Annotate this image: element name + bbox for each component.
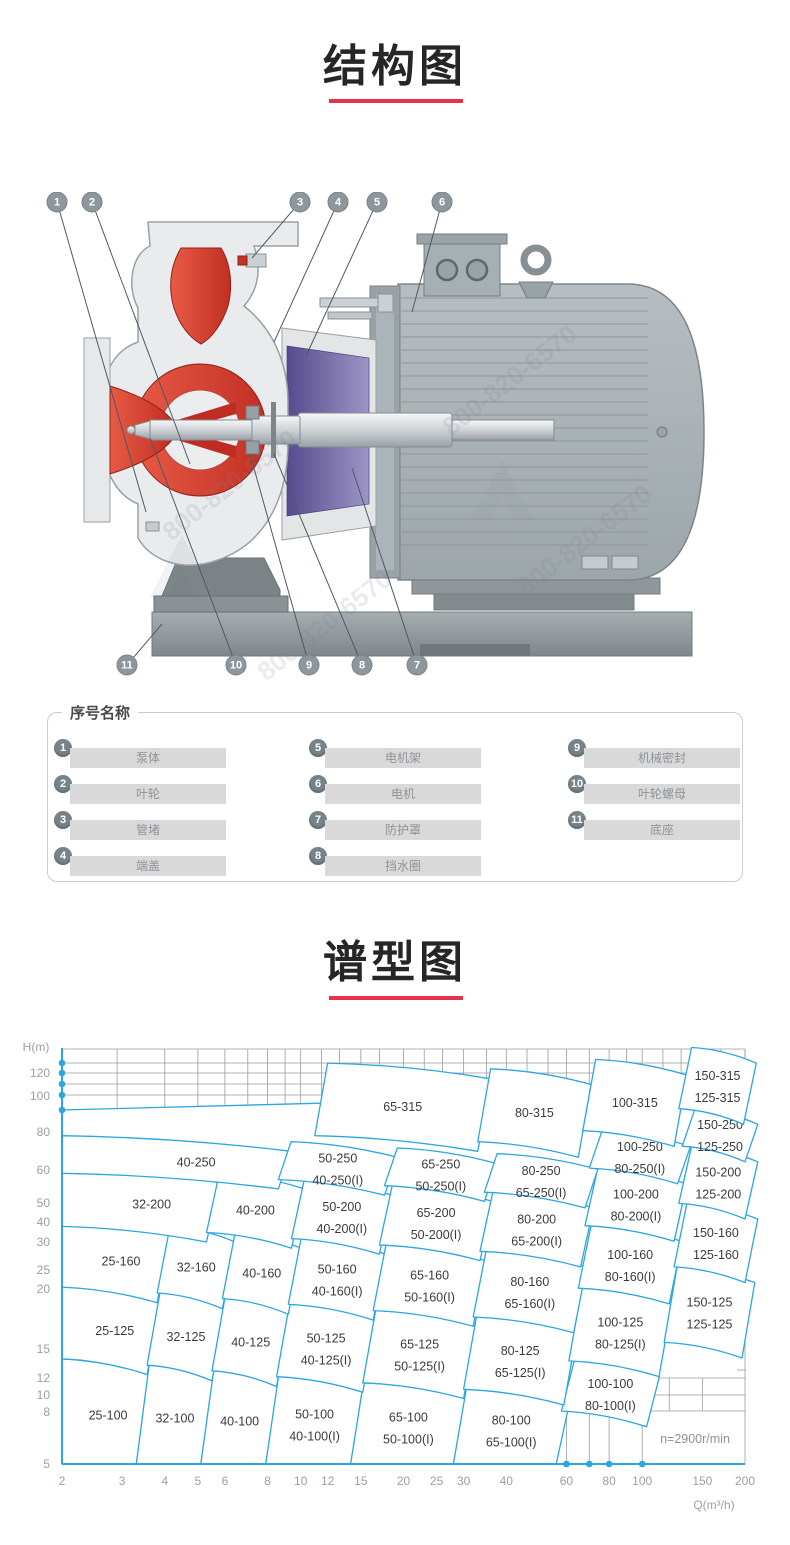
region-label: 100-315: [612, 1096, 658, 1110]
x-tick-label: 15: [354, 1474, 368, 1488]
x-axis-title: Q(m³/h): [693, 1498, 734, 1512]
region-label: 32-125: [166, 1330, 205, 1344]
region-label: 80-250(I): [614, 1162, 665, 1176]
callout-number: 4: [335, 197, 342, 209]
region-label: 50-160(I): [404, 1291, 455, 1305]
x-tick-label: 2: [59, 1474, 66, 1488]
region-label: 32-200: [132, 1198, 171, 1212]
region-label: 65-100(I): [486, 1436, 537, 1450]
region-label: 40-200(I): [316, 1222, 367, 1236]
callout-number: 3: [297, 197, 303, 209]
x-tick-label: 100: [632, 1474, 652, 1488]
part-item-3: 3管堵: [54, 811, 226, 841]
region-label: 65-200(I): [511, 1235, 562, 1249]
x-tick-label: 4: [161, 1474, 168, 1488]
region-150-315: [679, 1048, 757, 1125]
part-name: 防护罩: [325, 820, 481, 840]
region-label: 50-160: [318, 1262, 357, 1276]
region-label: 80-100(I): [585, 1399, 636, 1413]
region-label: 65-160: [410, 1269, 449, 1283]
y-tick-label: 60: [37, 1163, 51, 1177]
callout-number: 10: [230, 660, 242, 672]
region-label: 50-250: [318, 1151, 357, 1165]
y-tick-label: 50: [37, 1196, 51, 1210]
y-tick-label: 80: [37, 1125, 51, 1139]
region-label: 150-315: [695, 1069, 741, 1083]
callout-number: 2: [89, 197, 95, 209]
region-label: 40-250(I): [312, 1173, 363, 1187]
base-plate: [152, 612, 692, 656]
y-axis-title: H(m): [23, 1040, 50, 1054]
region-label: 80-100: [492, 1414, 531, 1428]
region-label: 65-160(I): [504, 1297, 555, 1311]
part-name: 泵体: [70, 748, 226, 768]
region-label: 40-100: [220, 1414, 259, 1428]
region-label: 125-315: [695, 1091, 741, 1105]
callout-number: 9: [306, 660, 312, 672]
y-tick-label: 100: [30, 1089, 50, 1103]
y-tick-label: 30: [37, 1235, 51, 1249]
callout-number: 11: [121, 660, 133, 672]
structure-diagram-title: 结构图: [0, 30, 790, 94]
y-tick-label: 5: [43, 1457, 50, 1471]
product-page: 结构图: [0, 0, 790, 1545]
region-label: 65-250: [421, 1158, 460, 1172]
suction-flange: [84, 338, 110, 522]
type-chart-title: 谱型图: [0, 926, 790, 990]
lifting-eye: [519, 248, 553, 298]
callout-number: 8: [359, 660, 365, 672]
part-item-9: 9机械密封: [568, 739, 740, 769]
region-label: 150-160: [693, 1226, 739, 1240]
x-tick-label: 6: [222, 1474, 229, 1488]
region-label: 80-315: [515, 1106, 554, 1120]
region-label: 40-125: [231, 1336, 270, 1350]
part-item-8: 8挡水圈: [309, 847, 481, 877]
callout-number: 7: [414, 660, 420, 672]
type-chart-title-underline: [329, 996, 463, 1000]
y-tick-label: 40: [37, 1215, 51, 1229]
part-name: 底座: [584, 820, 740, 840]
region-label: 80-160: [510, 1275, 549, 1289]
x-tick-label: 30: [457, 1474, 471, 1488]
callout-leader-5: [306, 202, 377, 356]
x-tick-label: 20: [397, 1474, 411, 1488]
region-label: 65-100: [389, 1410, 428, 1424]
region-label: 40-250: [177, 1155, 216, 1169]
region-label: 100-250: [617, 1140, 663, 1154]
region-label: 100-160: [607, 1248, 653, 1262]
structure-title-underline: [329, 99, 463, 103]
region-label: 65-315: [383, 1100, 422, 1114]
pipe-plug: [238, 254, 266, 267]
region-label: 80-160(I): [605, 1270, 656, 1284]
region-label: 150-125: [687, 1295, 733, 1309]
y-tick-label: 25: [37, 1263, 51, 1277]
part-item-10: 10叶轮螺母: [568, 775, 740, 805]
part-item-6: 6电机: [309, 775, 481, 805]
region-label: 40-100(I): [289, 1429, 340, 1443]
region-label: 150-200: [695, 1166, 741, 1180]
x-tick-label: 5: [195, 1474, 202, 1488]
region-label: 80-250: [522, 1164, 561, 1178]
part-item-5: 5电机架: [309, 739, 481, 769]
y-tick-label: 120: [30, 1066, 50, 1080]
model-regions: 25-10032-10040-10050-10040-100(I)65-1005…: [62, 1048, 758, 1465]
region-label: 100-200: [613, 1188, 659, 1202]
region-label: 125-160: [693, 1248, 739, 1262]
part-item-2: 2叶轮: [54, 775, 226, 805]
part-name: 叶轮: [70, 784, 226, 804]
region-label: 65-200: [417, 1206, 456, 1220]
region-label: 40-160: [242, 1266, 281, 1280]
region-label: 125-200: [695, 1188, 741, 1202]
callout-number: 6: [439, 197, 445, 209]
region-label: 50-125: [307, 1331, 346, 1345]
x-tick-label: 150: [692, 1474, 712, 1488]
region-label: 50-250(I): [415, 1180, 466, 1194]
region-label: 40-125(I): [301, 1353, 352, 1367]
x-tick-label: 3: [119, 1474, 126, 1488]
pump-selection-chart: 25-10032-10040-10050-10040-100(I)65-1005…: [0, 1030, 790, 1545]
x-tick-label: 8: [264, 1474, 271, 1488]
part-name: 电机架: [325, 748, 481, 768]
region-label: 25-125: [95, 1324, 134, 1338]
x-tick-label: 10: [294, 1474, 308, 1488]
part-item-1: 1泵体: [54, 739, 226, 769]
region-label: 100-125: [597, 1315, 643, 1329]
region-label: 50-200(I): [411, 1228, 462, 1242]
part-name: 机械密封: [584, 748, 740, 768]
x-tick-label: 25: [430, 1474, 444, 1488]
x-tick-label: 40: [500, 1474, 514, 1488]
region-label: 40-160(I): [312, 1284, 363, 1298]
callout-number: 1: [54, 197, 60, 209]
y-tick-label: 20: [37, 1282, 51, 1296]
y-tick-label: 15: [37, 1342, 51, 1356]
part-name: 挡水圈: [325, 856, 481, 876]
x-tick-label: 80: [602, 1474, 616, 1488]
region-label: 80-200: [517, 1213, 556, 1227]
part-item-4: 4端盖: [54, 847, 226, 877]
region-label: 50-200: [322, 1200, 361, 1214]
region-label: 80-125: [501, 1344, 540, 1358]
region-label: 50-100(I): [383, 1432, 434, 1446]
y-tick-label: 8: [43, 1405, 50, 1419]
region-label: 125-125: [687, 1317, 733, 1331]
region-label: 80-200(I): [611, 1210, 662, 1224]
speed-annotation: n=2900r/min: [660, 1432, 730, 1446]
x-tick-label: 60: [560, 1474, 574, 1488]
x-tick-label: 200: [735, 1474, 755, 1488]
y-tick-label: 10: [37, 1388, 51, 1402]
region-label: 50-100: [295, 1407, 334, 1421]
region-label: 65-125(I): [495, 1366, 546, 1380]
part-item-7: 7防护罩: [309, 811, 481, 841]
pump-structure-diagram: 800-820-6570800-820-6570800-820-6570800-…: [0, 192, 790, 692]
parts-panel: 序号名称 1泵体2叶轮3管堵4端盖5电机架6电机7防护罩8挡水圈9机械密封10叶…: [47, 712, 743, 882]
part-name: 电机: [325, 784, 481, 804]
x-tick-label: 12: [321, 1474, 335, 1488]
region-label: 65-125: [400, 1338, 439, 1352]
region-label: 32-160: [177, 1261, 216, 1275]
region-label: 80-125(I): [595, 1337, 646, 1351]
part-name: 叶轮螺母: [584, 784, 740, 804]
part-name: 端盖: [70, 856, 226, 876]
part-item-11: 11底座: [568, 811, 740, 841]
region-label: 50-125(I): [394, 1360, 445, 1374]
region-label: 100-100: [587, 1377, 633, 1391]
callout-number: 5: [374, 197, 380, 209]
region-label: 25-160: [102, 1254, 141, 1268]
region-label: 125-250: [697, 1140, 743, 1154]
y-tick-label: 12: [37, 1371, 51, 1385]
region-label: 25-100: [89, 1408, 128, 1422]
region-label: 65-250(I): [516, 1186, 567, 1200]
parts-panel-legend: 序号名称: [62, 702, 138, 723]
part-name: 管堵: [70, 820, 226, 840]
region-label: 32-100: [155, 1412, 194, 1426]
region-label: 40-200: [236, 1204, 275, 1218]
